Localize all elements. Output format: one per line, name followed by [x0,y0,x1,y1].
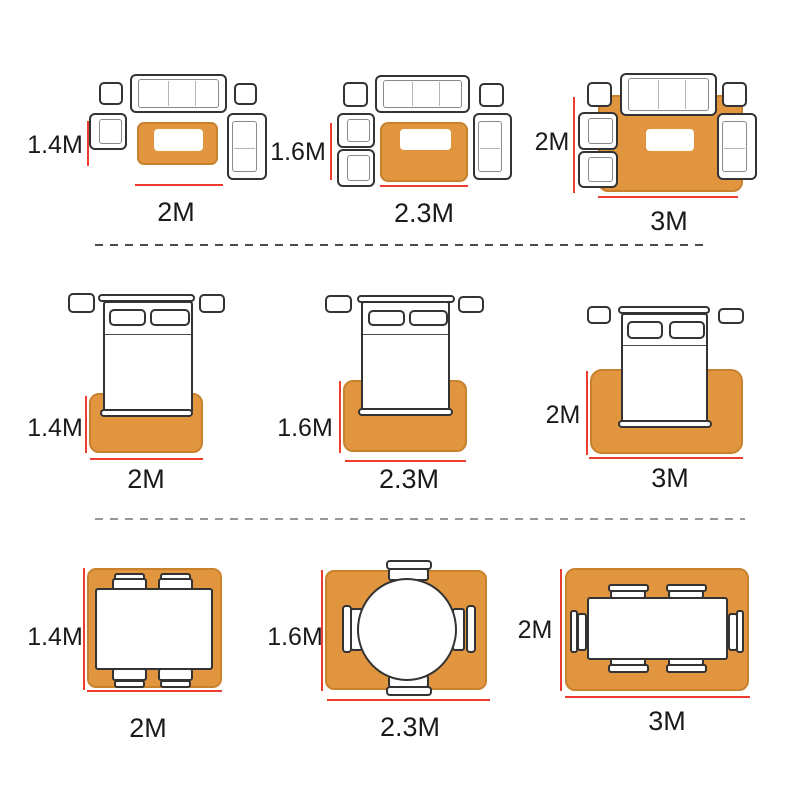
living-room-scene-1: 1.4M 2M [30,70,275,235]
nightstand [199,294,225,313]
height-dimension-line [87,121,89,166]
width-dimension-label: 2.3M [375,714,445,741]
bed-foot-bar [100,409,193,417]
nightstand [458,296,484,313]
nightstand [718,308,744,324]
sofa [130,74,227,113]
armchair-seat [347,155,370,181]
sofa-seat [628,78,709,111]
width-dimension-label: 3M [637,708,697,735]
loveseat-cushion-divider [234,148,255,149]
pillow [409,310,448,326]
chair-seat [577,613,587,651]
nightstand [325,295,352,313]
height-dimension-label: 2M [505,618,565,643]
armchair [337,149,375,187]
bed-foot-bar [358,408,453,416]
bedroom-scene-3: 2M 3M [540,290,770,500]
armchair-seat [99,119,122,144]
armchair [337,113,375,148]
width-dimension-label: 3M [639,208,699,235]
blanket-edge-line [623,345,706,346]
coffee-table [646,129,694,151]
coffee-table [154,129,203,151]
width-dimension-line [90,458,203,460]
sofa [375,75,470,113]
pillow [150,309,190,326]
dining-room-scene-1: 1.4M 2M [28,560,268,740]
dining-table [95,588,213,670]
width-dimension-line [327,699,490,701]
width-dimension-label: 2M [116,466,176,493]
row-divider [95,518,745,520]
height-dimension-label: 1.6M [268,140,328,165]
pillow [669,321,705,339]
height-dimension-label: 1.4M [25,133,85,158]
loveseat [227,113,267,180]
armchair [89,113,127,150]
loveseat [473,113,512,180]
bed-mattress [621,313,708,424]
width-dimension-line [565,696,750,698]
loveseat [717,113,757,180]
sofa-cushion-divider [168,81,169,106]
blanket-edge-line [363,334,448,335]
pillow [627,321,663,339]
side-table [234,83,257,105]
bed-mattress [103,301,193,413]
dining-table [587,597,728,660]
sofa-cushion-divider [195,81,196,106]
living-room-scene-2: 1.6M 2.3M [275,70,520,235]
armchair [578,151,618,188]
sofa [620,73,717,116]
sofa-cushion-divider [412,82,413,106]
sofa-seat [383,80,462,108]
coffee-table [400,129,451,150]
chair-back [386,686,432,696]
width-dimension-line [380,185,468,187]
width-dimension-line [598,196,738,198]
sofa-cushion-divider [439,82,440,106]
bed-foot-bar [618,420,712,428]
loveseat-seat [232,121,257,172]
height-dimension-line [339,381,341,453]
width-dimension-line [135,184,223,186]
round-dining-table [357,578,457,681]
height-dimension-label: 2M [533,403,593,428]
chair-back [466,605,476,653]
pillow [109,309,146,326]
dining-room-scene-3: 2M 3M [535,560,785,735]
height-dimension-label: 1.6M [265,625,325,650]
side-table [587,82,612,107]
side-table [99,82,123,105]
nightstand [587,306,611,324]
height-dimension-label: 1.6M [275,416,335,441]
bed-mattress [361,301,450,412]
loveseat-cushion-divider [480,148,500,149]
height-dimension-line [330,123,332,180]
side-table [343,82,368,107]
loveseat-seat [478,121,502,172]
armchair [578,112,618,150]
width-dimension-label: 2.3M [374,466,444,493]
chair-seat [728,613,738,651]
armchair-seat [347,119,370,142]
blanket-edge-line [105,334,191,335]
chair-back [114,680,145,688]
loveseat-seat [722,121,747,172]
armchair-seat [588,118,613,144]
rug [380,122,468,182]
width-dimension-line [589,457,743,459]
height-dimension-label: 2M [522,130,582,155]
height-dimension-label: 1.4M [25,416,85,441]
width-dimension-label: 2M [146,199,206,226]
chair-back [608,664,649,673]
nightstand [68,293,95,313]
width-dimension-label: 3M [640,465,700,492]
dining-room-scene-2: 1.6M 2.3M [280,555,530,740]
width-dimension-label: 2M [118,715,178,742]
rug-size-guide: 1.4M 2M 1.6M 2.3M [0,0,800,800]
height-dimension-line [85,396,87,453]
side-table [722,82,747,107]
height-dimension-label: 1.4M [25,625,85,650]
chair-back [666,664,707,673]
sofa-cushion-divider [685,80,686,109]
sofa-seat [138,79,219,108]
armchair-seat [588,157,613,182]
row-divider [95,244,710,246]
living-room-scene-3: 2M 3M [520,70,770,240]
width-dimension-line [87,690,222,692]
rug [137,122,218,165]
sofa-cushion-divider [658,80,659,109]
pillow [368,310,405,326]
side-table [479,83,504,107]
chair-back [160,680,191,688]
loveseat-cushion-divider [724,148,745,149]
bedroom-scene-1: 1.4M 2M [30,290,260,500]
bedroom-scene-2: 1.6M 2.3M [285,290,515,500]
width-dimension-label: 2.3M [389,200,459,227]
width-dimension-line [345,460,466,462]
